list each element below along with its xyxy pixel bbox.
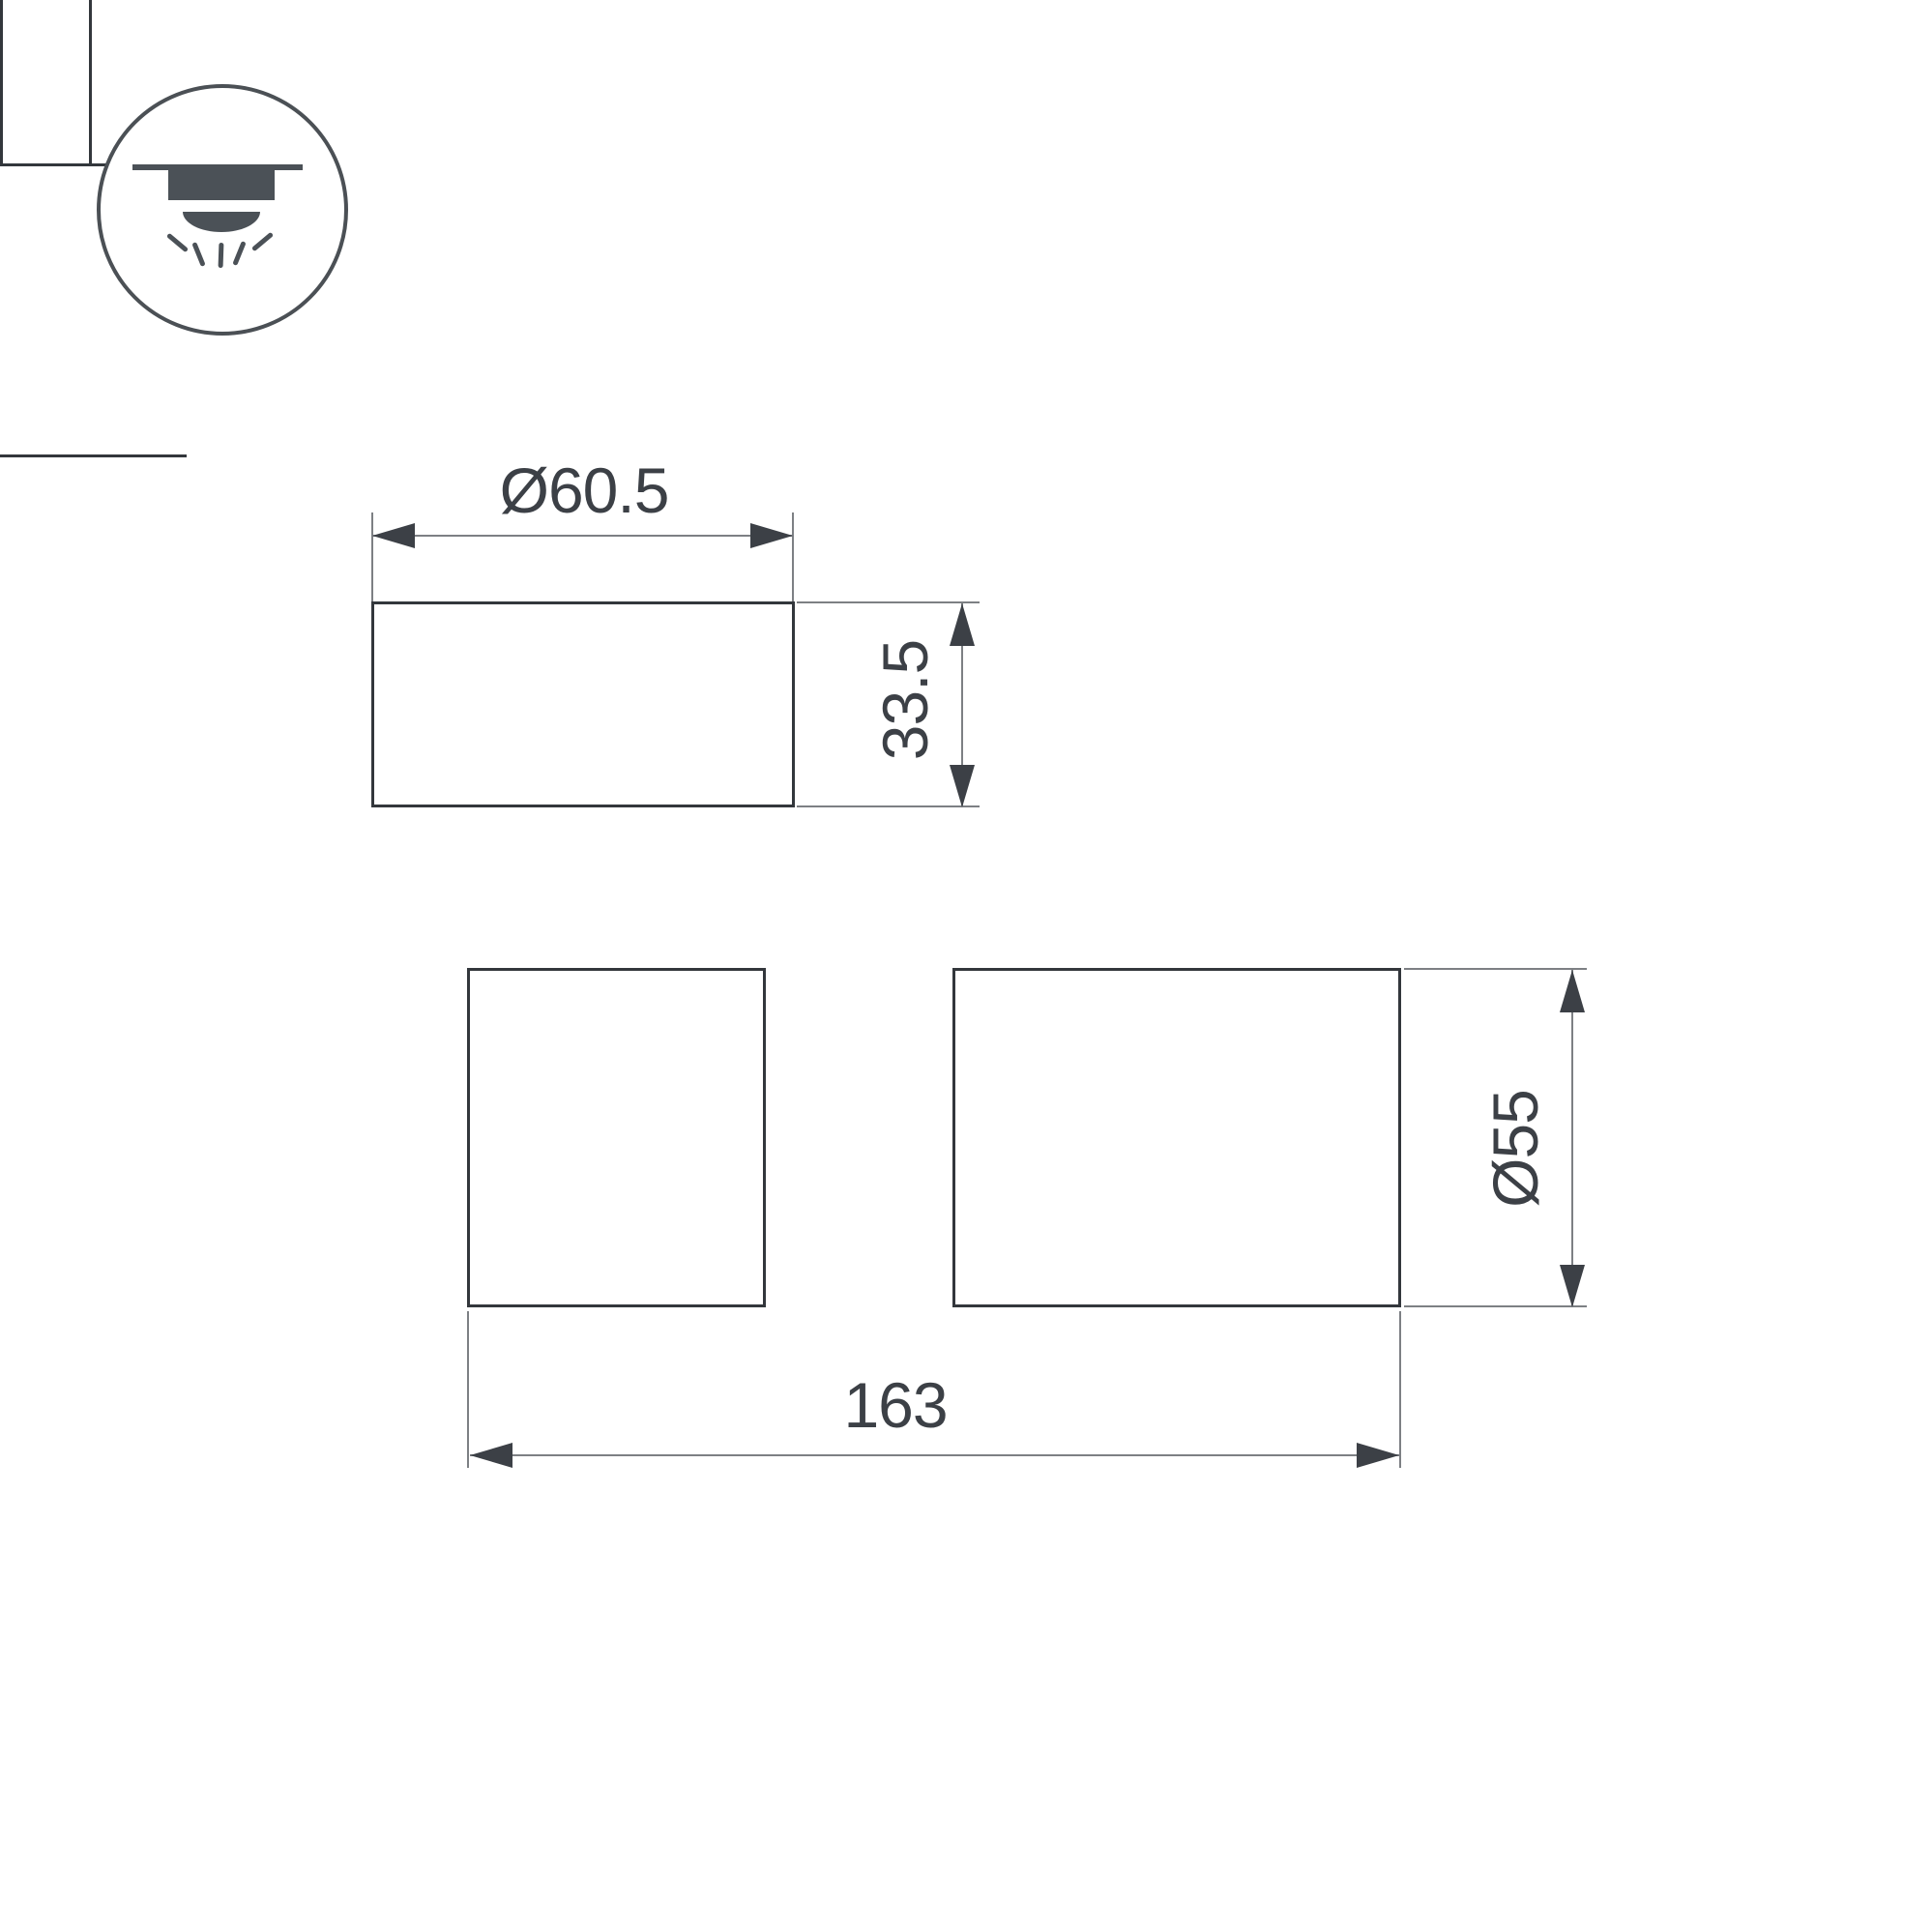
dim-label-cap-diameter: Ø60.5: [500, 458, 669, 522]
extension-line: [1399, 1311, 1401, 1468]
arrowhead-right-icon: [750, 523, 793, 548]
icon-fixture-base: [168, 169, 275, 200]
ceiling-cap-outline: [371, 601, 795, 807]
dimension-line: [372, 535, 793, 537]
arrowhead-down-icon: [950, 765, 975, 807]
arrowhead-left-icon: [470, 1443, 512, 1468]
arrowhead-down-icon: [1560, 1265, 1585, 1307]
icon-light-ray: [219, 243, 224, 268]
stem-outline: [0, 0, 92, 163]
arrowhead-up-icon: [950, 603, 975, 646]
arrowhead-up-icon: [1560, 970, 1585, 1012]
arrowhead-right-icon: [1357, 1443, 1399, 1468]
mount-type-icon: [97, 84, 348, 336]
dim-label-body-diameter: Ø55: [1483, 1090, 1547, 1208]
dimension-line: [470, 1454, 1399, 1456]
arrowhead-left-icon: [372, 523, 415, 548]
dim-label-cap-height: 33.5: [873, 640, 937, 760]
drawing-canvas: Ø60.5 33.5 Ø55 163: [0, 0, 1932, 1932]
extension-line: [467, 1311, 469, 1468]
dimension-line: [1571, 970, 1573, 1307]
dim-label-total-length: 163: [843, 1373, 947, 1437]
spot-body-front-outline: [467, 968, 766, 1307]
spot-body-rear-outline: [952, 968, 1401, 1307]
